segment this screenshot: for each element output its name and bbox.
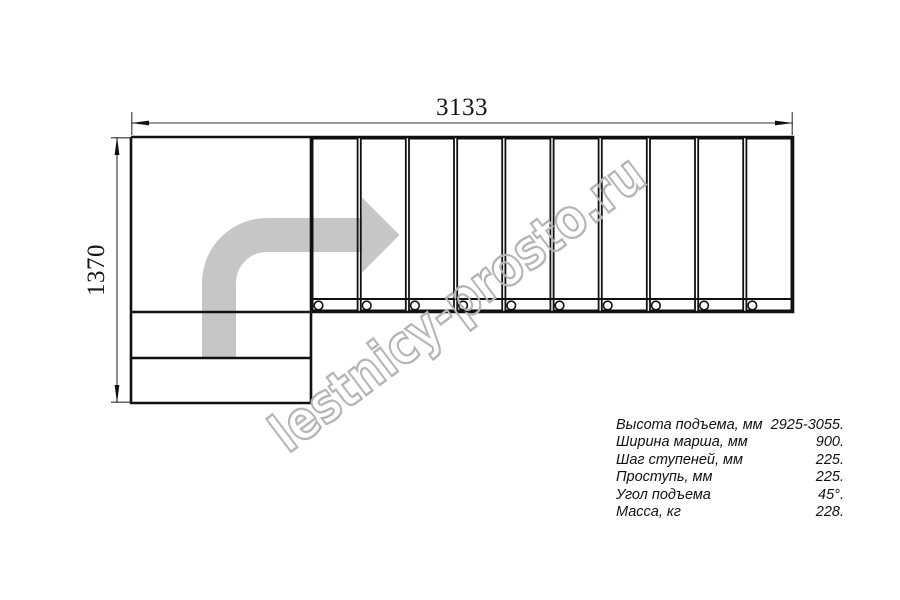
spec-row-rise-angle: Угол подъема 45°. [616, 487, 844, 504]
spec-label: Масса, кг [616, 504, 681, 521]
dim-arrow-top [115, 137, 120, 155]
tread [698, 139, 743, 311]
spec-label: Угол подъема [616, 487, 711, 504]
spec-row-step-pitch: Шаг ступеней, мм 225. [616, 452, 844, 469]
spec-value: 225. [816, 469, 844, 486]
mounting-hole [362, 301, 371, 310]
spec-label: Шаг ступеней, мм [616, 452, 743, 469]
spec-value: 900. [816, 434, 844, 451]
mounting-hole [555, 301, 564, 310]
tread [650, 139, 695, 311]
spec-row-flight-width: Ширина марша, мм 900. [616, 434, 844, 451]
tread [746, 139, 791, 311]
mounting-hole [314, 301, 323, 310]
dimension-width-label: 3133 [436, 94, 488, 121]
spec-value: 45°. [818, 487, 844, 504]
dim-arrow-bottom [115, 385, 120, 403]
specs-table: Высота подъема, мм 2925-3055. Ширина мар… [616, 417, 844, 521]
mounting-hole [700, 301, 709, 310]
spec-value: 225. [816, 452, 844, 469]
spec-label: Ширина марша, мм [616, 434, 748, 451]
mounting-hole [748, 301, 757, 310]
mounting-hole [652, 301, 661, 310]
spec-row-mass: Масса, кг 228. [616, 504, 844, 521]
dim-arrow-left [131, 121, 149, 126]
spec-row-rise-height: Высота подъема, мм 2925-3055. [616, 417, 844, 434]
spec-value: 2925-3055. [771, 417, 844, 434]
mounting-hole [603, 301, 612, 310]
direction-arrow-head [362, 198, 400, 273]
spec-label: Высота подъема, мм [616, 417, 763, 434]
stair-drawing-page: 3133 1370 lestnicy-prosto.ru Высота подъ… [0, 0, 900, 600]
spec-value: 228. [816, 504, 844, 521]
dimension-depth-label: 1370 [83, 244, 110, 296]
dim-arrow-right [775, 121, 793, 126]
spec-label: Проступь, мм [616, 469, 712, 486]
mounting-holes [314, 301, 756, 310]
spec-row-tread-depth: Проступь, мм 225. [616, 469, 844, 486]
